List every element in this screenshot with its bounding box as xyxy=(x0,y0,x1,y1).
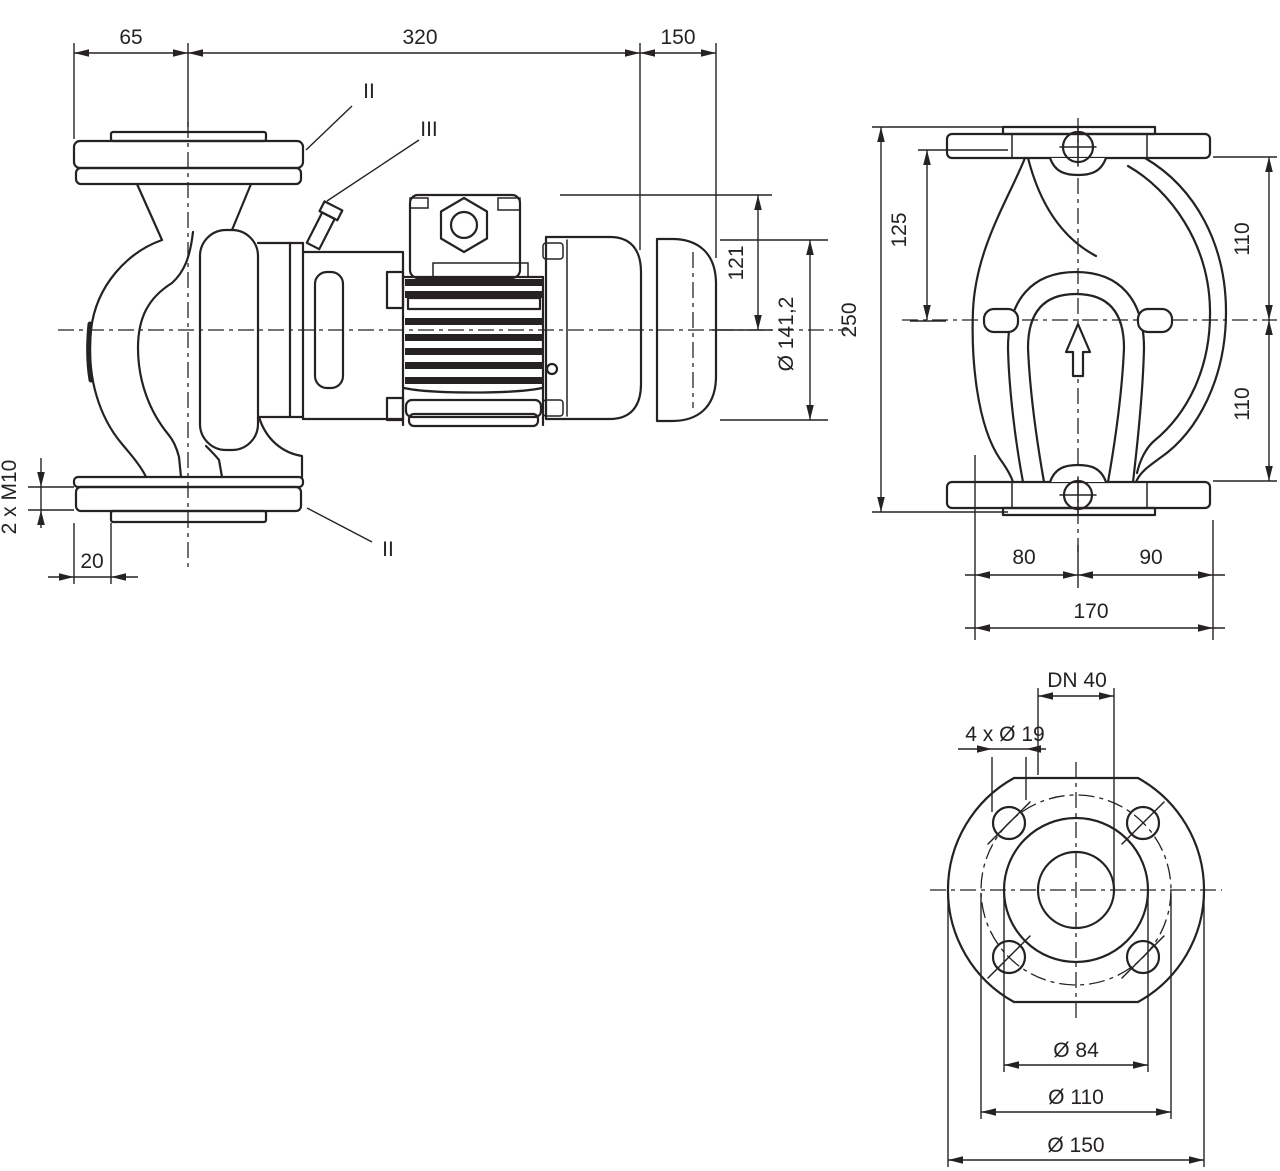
dim-fan-diameter: Ø 141,2 xyxy=(775,297,798,372)
side-view-pump-outline xyxy=(74,132,403,522)
motor-fins xyxy=(405,279,542,384)
cable-gland-hexagon xyxy=(441,198,487,252)
label-section-II-bottom: II xyxy=(382,538,394,561)
front-view: 250 125 110 110 xyxy=(838,118,1277,640)
dim-raised-face: Ø 84 xyxy=(1053,1039,1099,1062)
dim-80: 80 xyxy=(1012,546,1035,569)
dim-65: 65 xyxy=(119,26,142,49)
side-view: 65 320 150 II III II 121 Ø 141,2 xyxy=(0,26,848,584)
flow-direction-arrow xyxy=(1066,324,1090,376)
drawing-canvas: 65 320 150 II III II 121 Ø 141,2 xyxy=(0,0,1280,1171)
dim-bolt-circle: Ø 110 xyxy=(1048,1086,1104,1109)
dim-170: 170 xyxy=(1073,600,1108,623)
dim-bolt-holes: 4 x Ø 19 xyxy=(965,723,1044,746)
side-view-motor xyxy=(403,195,716,426)
casing-lug-left xyxy=(984,309,1018,332)
vent-plug xyxy=(304,201,342,250)
dim-110-top: 110 xyxy=(1231,222,1254,255)
dim-outer-diameter: Ø 150 xyxy=(1047,1134,1104,1157)
drain-plug xyxy=(547,364,557,374)
dim-320: 320 xyxy=(402,26,437,49)
dim-90: 90 xyxy=(1139,546,1162,569)
dim-20: 20 xyxy=(80,550,103,573)
flange-view: DN 40 4 x Ø 19 Ø 84 Ø 110 xyxy=(930,669,1222,1167)
dim-250: 250 xyxy=(838,302,861,337)
casing-lug-right xyxy=(1138,309,1172,332)
label-section-II-top: II xyxy=(363,80,375,103)
front-view-pump-outline xyxy=(947,127,1226,515)
dim-125: 125 xyxy=(888,212,911,247)
pump-dimensional-drawing: 65 320 150 II III II 121 Ø 141,2 xyxy=(0,0,1280,1171)
flange-view-centerlines xyxy=(930,762,1222,1018)
dim-foot-thread: 2 x M10 xyxy=(0,460,21,535)
label-section-III: III xyxy=(420,118,438,141)
side-view-centerlines xyxy=(58,122,848,568)
dim-121: 121 xyxy=(725,245,748,280)
dim-110-bottom: 110 xyxy=(1231,387,1254,420)
dim-dn40: DN 40 xyxy=(1047,669,1107,692)
motor-nameplate xyxy=(408,298,540,309)
front-view-dimensions: 250 125 110 110 xyxy=(838,127,1277,640)
dim-150: 150 xyxy=(660,26,695,49)
